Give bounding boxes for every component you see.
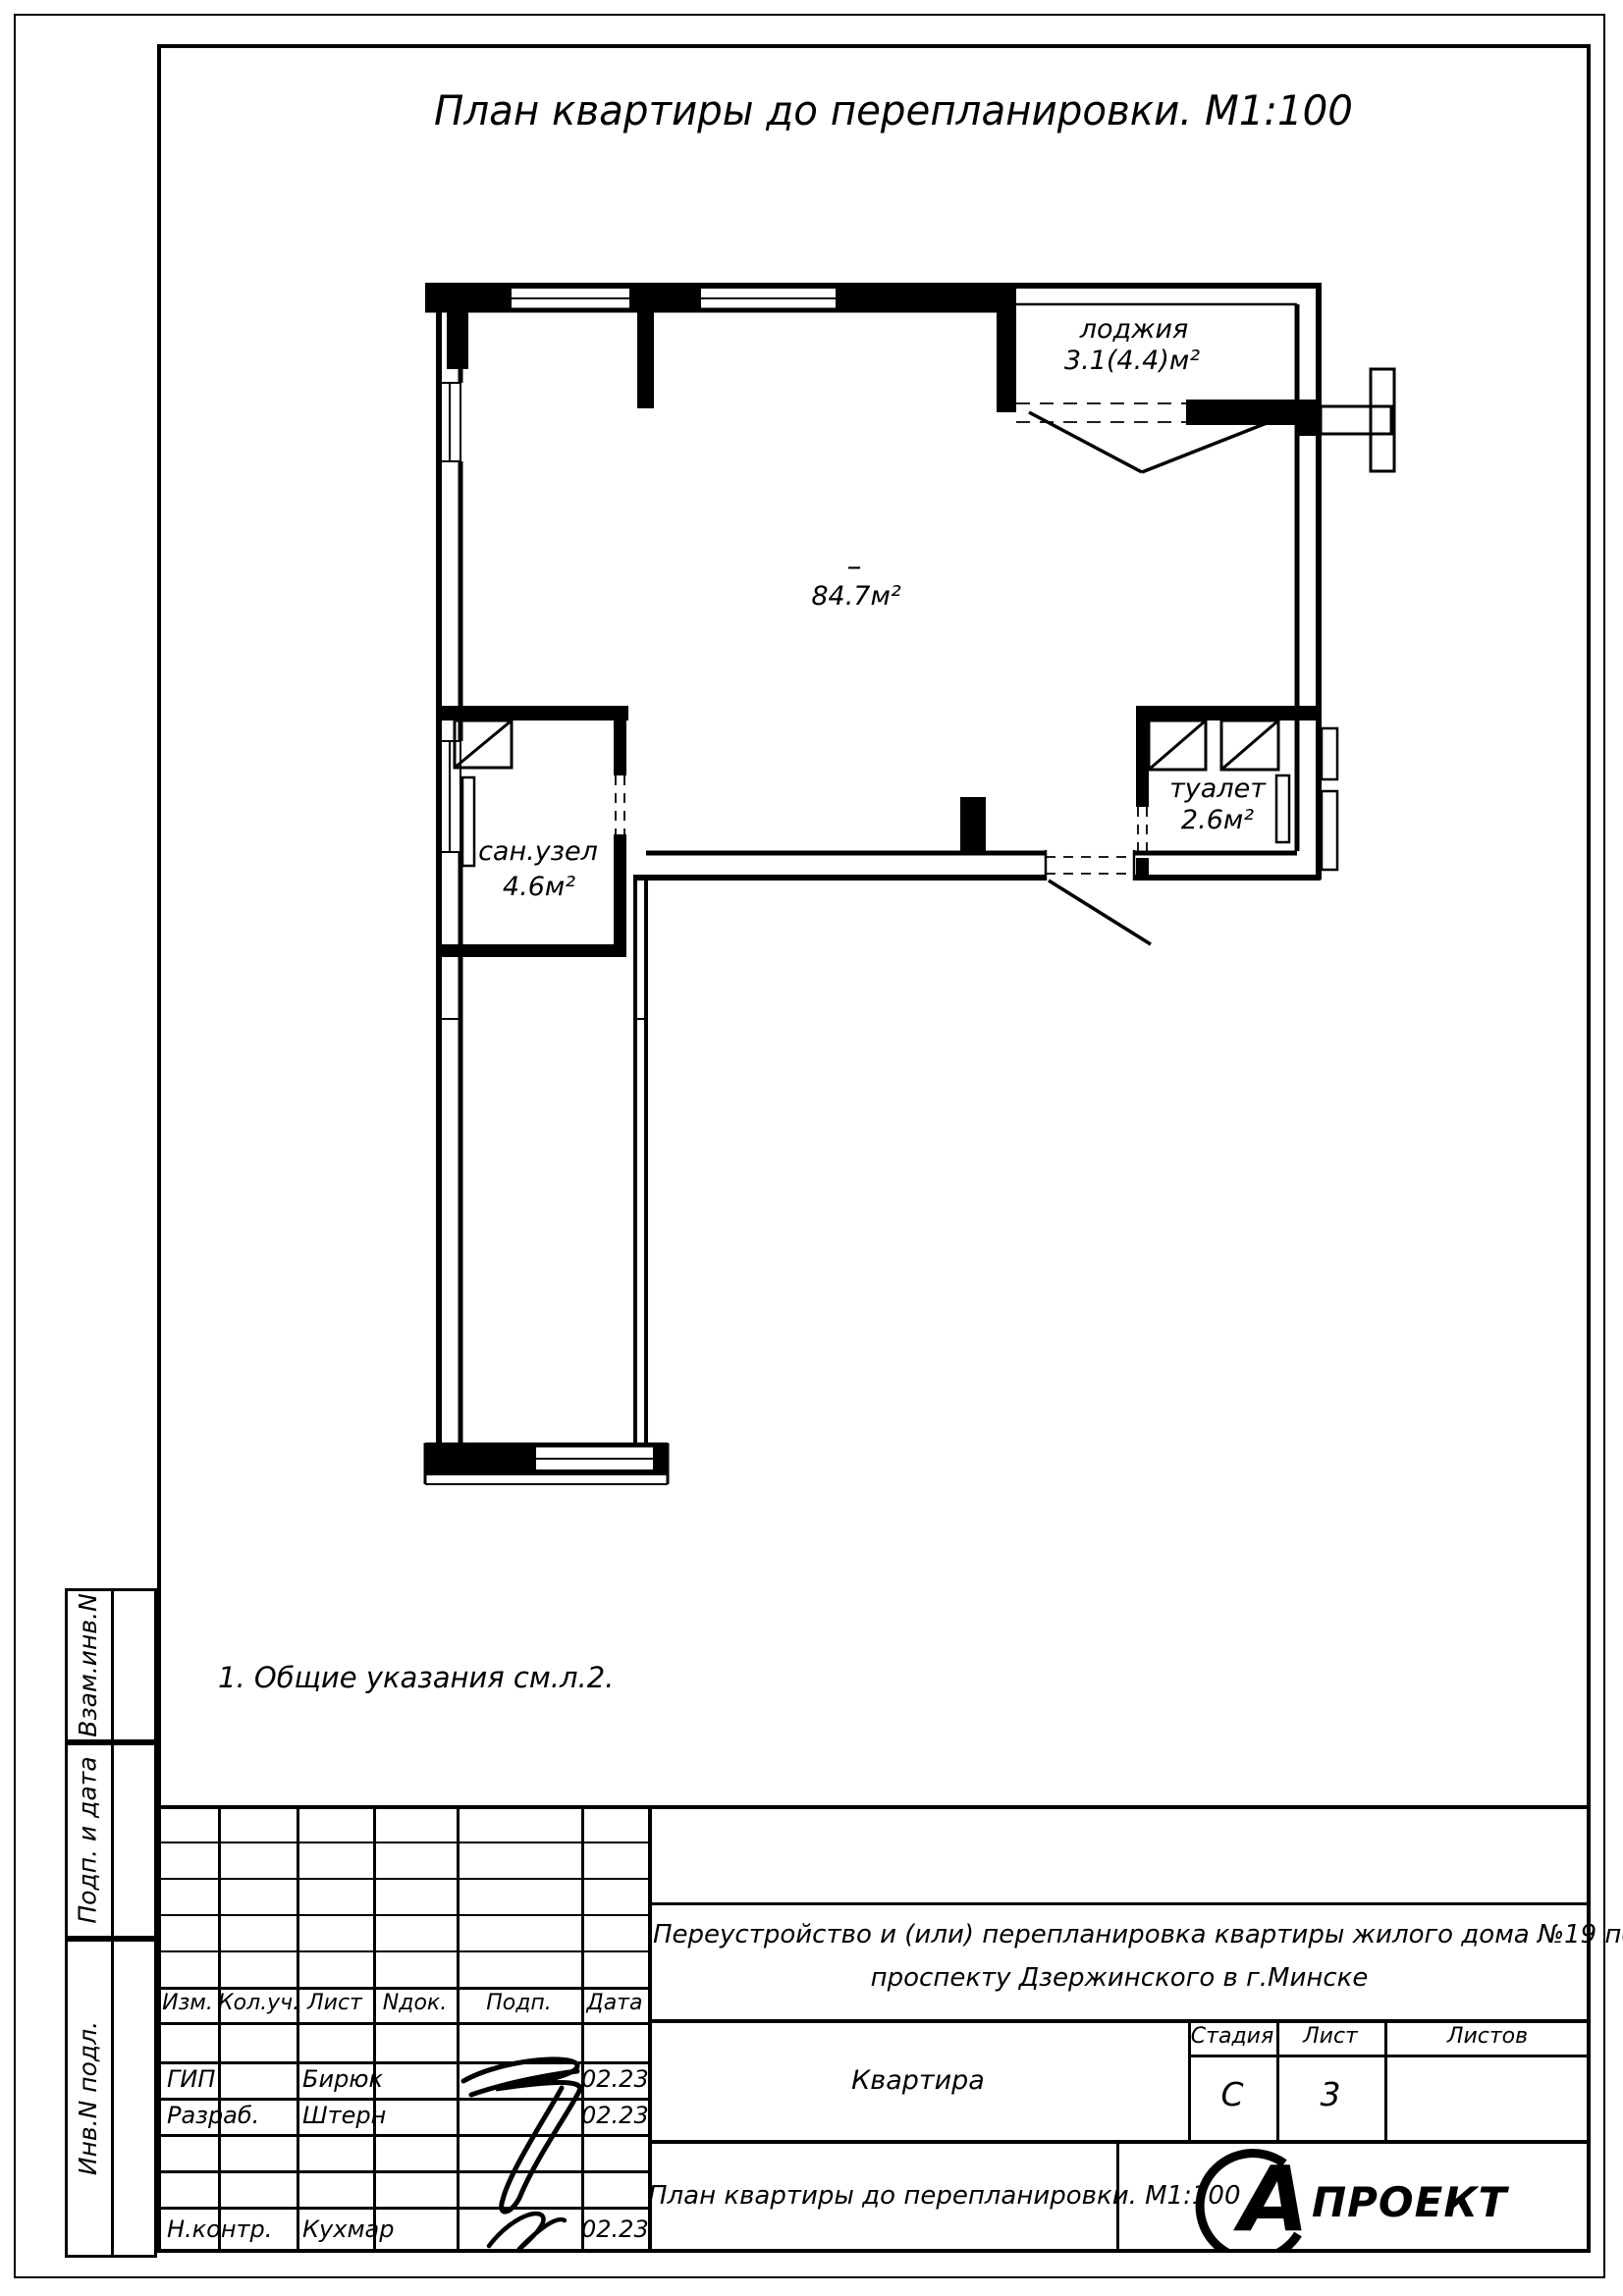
toilet-label: туалет [1169, 774, 1266, 804]
margin-label-vzam: Взам.инв.N [65, 1588, 111, 1742]
bathroom-label: сан.узел [478, 836, 598, 867]
logo-letter: А [1233, 2147, 1309, 2252]
main-room-area: 84.7м² [811, 581, 900, 612]
margin-box-divider [111, 1942, 114, 2255]
loggia-walls [997, 283, 1321, 472]
general-note: 1. Общие указания см.л.2. [218, 1661, 614, 1694]
bathroom-area: 4.6м² [503, 872, 575, 902]
toilet-area: 2.6м² [1181, 805, 1254, 835]
margin-label-podp: Подп. и дата [65, 1742, 111, 1939]
loggia-area: 3.1(4.4)м² [1064, 346, 1200, 376]
signature-nkontr [489, 2214, 565, 2250]
signature-gip [463, 2059, 580, 2212]
main-room-mark: – [847, 550, 862, 584]
margin-box-divider [111, 1745, 114, 1936]
drawing-title: План квартиры до перепланировки. М1:100 [394, 86, 1393, 134]
loggia-label: лоджия [1080, 314, 1189, 345]
logo-text: ПРОЕКТ [1312, 2178, 1510, 2226]
margin-label-inv: Инв.N подл. [65, 1939, 111, 2258]
corridor-wall [439, 878, 646, 1447]
drawing-sheet: План квартиры до перепланировки. М1:100 [0, 0, 1623, 2296]
margin-box-divider [111, 1591, 114, 1739]
left-wall [439, 283, 460, 1447]
right-wall [1295, 283, 1394, 880]
company-logo: А ПРОЕКТ [1200, 2147, 1510, 2253]
titleblock-overlay: А ПРОЕКТ [157, 1805, 1591, 2253]
bathroom-walls [437, 706, 628, 957]
bottom-wall-window [425, 1443, 668, 1484]
